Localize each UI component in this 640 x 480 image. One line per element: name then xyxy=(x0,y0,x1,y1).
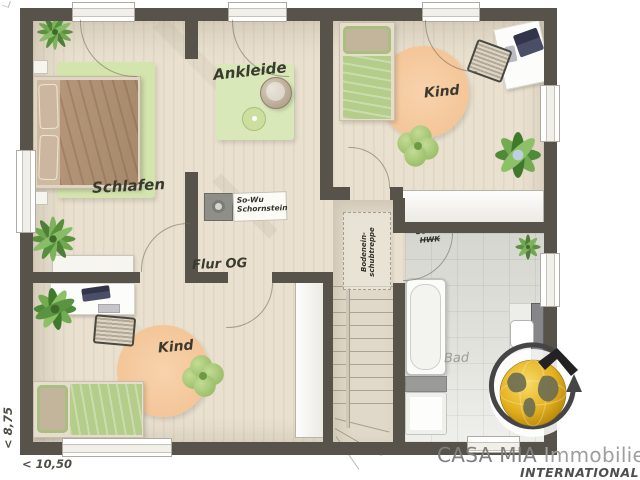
chimney-flue xyxy=(212,200,225,213)
logo-globe xyxy=(483,340,589,446)
logo-tagline: INTERNATIONAL xyxy=(520,465,638,480)
annotation-chimney: So-Wu Schornstein xyxy=(233,191,288,222)
annotation-attic-line2: schubtreppe xyxy=(368,213,376,291)
room-label-kind-top: Kind xyxy=(423,82,460,101)
pillow xyxy=(38,135,59,181)
corner-mark xyxy=(2,0,11,8)
dimension-width: < 10,50 xyxy=(22,457,72,471)
wall-kind-landing-a xyxy=(333,187,350,200)
toilet xyxy=(405,392,447,435)
logo-brand: CASA MIA xyxy=(437,443,537,467)
bathtub-inner xyxy=(410,284,441,370)
side-table-dot xyxy=(252,116,257,121)
keyboard xyxy=(98,304,120,313)
annotation-attic-stairs: Bodenein- schubtreppe xyxy=(343,212,391,290)
plant xyxy=(490,128,546,182)
logo-wordmark: CASA MIA Immobilien xyxy=(437,443,640,467)
double-bed-duvet xyxy=(60,80,138,185)
built-in-wardrobe xyxy=(295,281,324,438)
wall-bad-left xyxy=(393,283,405,442)
wall-kind-stairs xyxy=(323,278,333,442)
window-left-schlafen xyxy=(16,150,36,233)
window-top-ankleide xyxy=(228,2,287,22)
plant xyxy=(30,283,80,335)
annotation-chimney-line2: Schornstein xyxy=(237,203,283,214)
floorplan-image: So-Wu Schornstein So-Wu HWK Bodenein- sc… xyxy=(0,0,640,480)
single-bed-duvet xyxy=(343,56,391,119)
wall-ankleide-kind xyxy=(320,21,333,200)
room-label-bad: Bad xyxy=(444,351,470,367)
window-top-kind xyxy=(422,2,480,22)
round-chair-cushion xyxy=(266,82,285,101)
wall-schlafen-kind xyxy=(33,272,140,283)
annotation-attic-line1: Bodenein- xyxy=(360,213,368,291)
window-right-bad xyxy=(540,253,560,307)
window-top-schlafen xyxy=(72,2,135,22)
window-bottom-kind xyxy=(62,438,172,457)
wall-flur-kind-a xyxy=(198,272,228,283)
wall-schlafen-ankleide xyxy=(185,21,198,59)
nightstand xyxy=(33,60,48,74)
room-label-kind-bottom: Kind xyxy=(157,337,194,356)
room-label-schlafen: Schlafen xyxy=(92,175,166,197)
washing-machine xyxy=(405,376,447,392)
room-label-flur: Flur OG xyxy=(192,256,248,273)
stair-treads xyxy=(333,286,393,412)
plant xyxy=(513,233,543,261)
pillow xyxy=(38,84,59,130)
single-bed-pillow xyxy=(37,385,68,433)
single-bed-pillow xyxy=(343,26,391,54)
window-right-kind xyxy=(540,85,560,142)
dimension-height: < 8,75 xyxy=(1,405,15,449)
single-bed-duvet xyxy=(70,384,142,435)
built-in-wardrobe xyxy=(398,190,544,223)
logo-suffix: Immobilien xyxy=(544,443,640,467)
desk-chair xyxy=(93,314,136,346)
stair-handrail xyxy=(346,288,350,428)
flower-pillow xyxy=(179,352,228,401)
